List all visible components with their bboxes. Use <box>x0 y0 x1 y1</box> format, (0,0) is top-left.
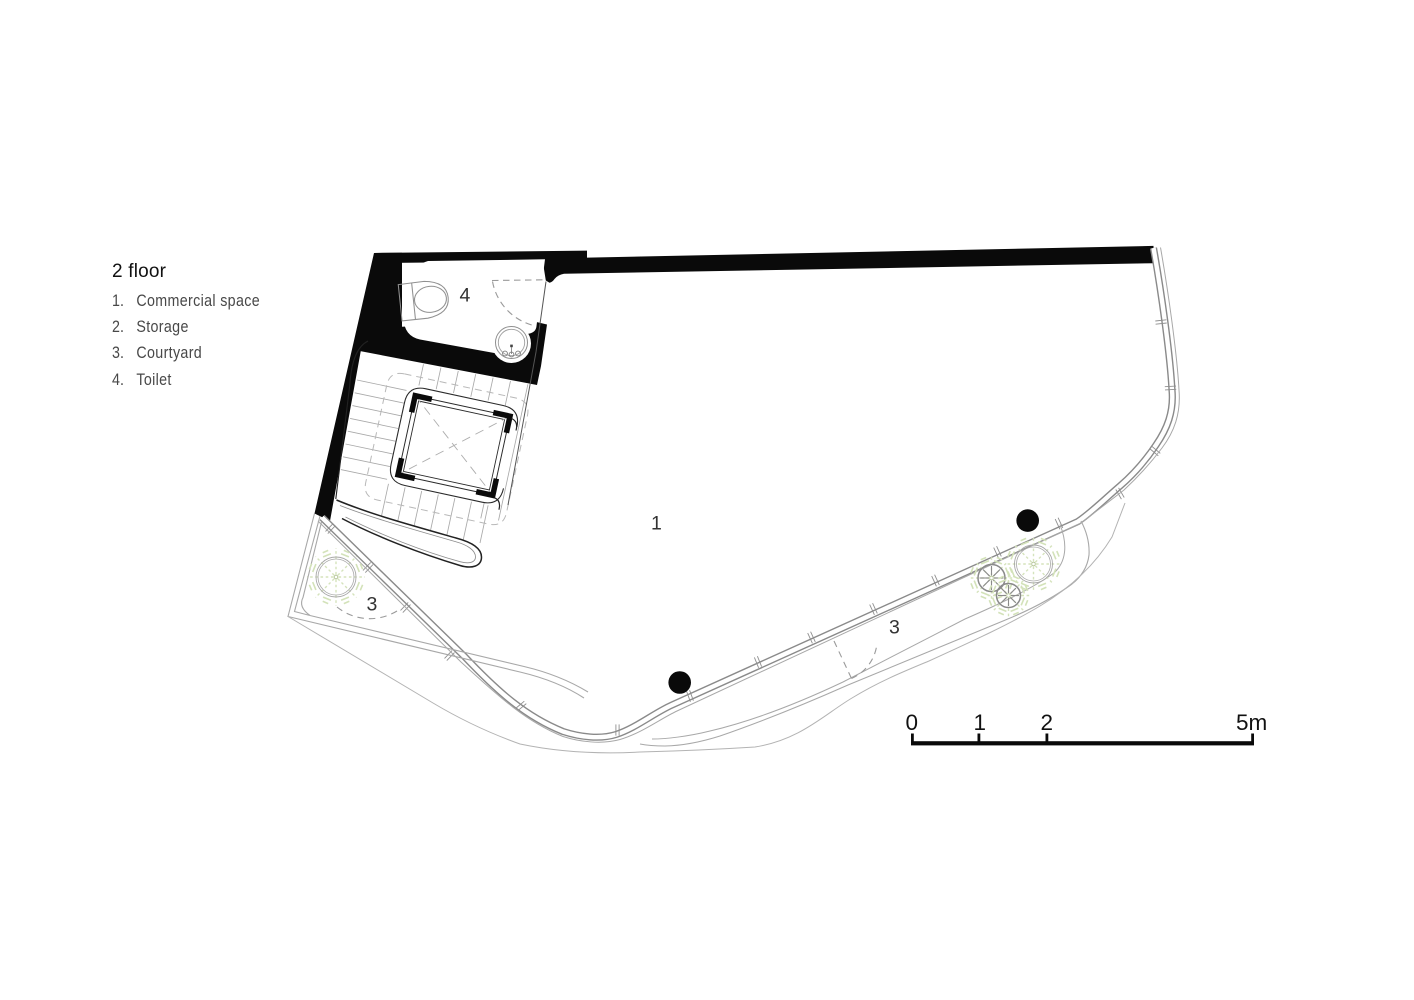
svg-text:0: 0 <box>906 710 919 735</box>
svg-text:1: 1 <box>974 710 987 735</box>
svg-text:3: 3 <box>889 617 900 639</box>
svg-text:2: 2 <box>1041 710 1054 735</box>
svg-text:1: 1 <box>651 513 662 535</box>
svg-text:4: 4 <box>460 285 471 307</box>
svg-text:5m: 5m <box>1236 710 1267 735</box>
svg-text:3: 3 <box>367 594 378 616</box>
